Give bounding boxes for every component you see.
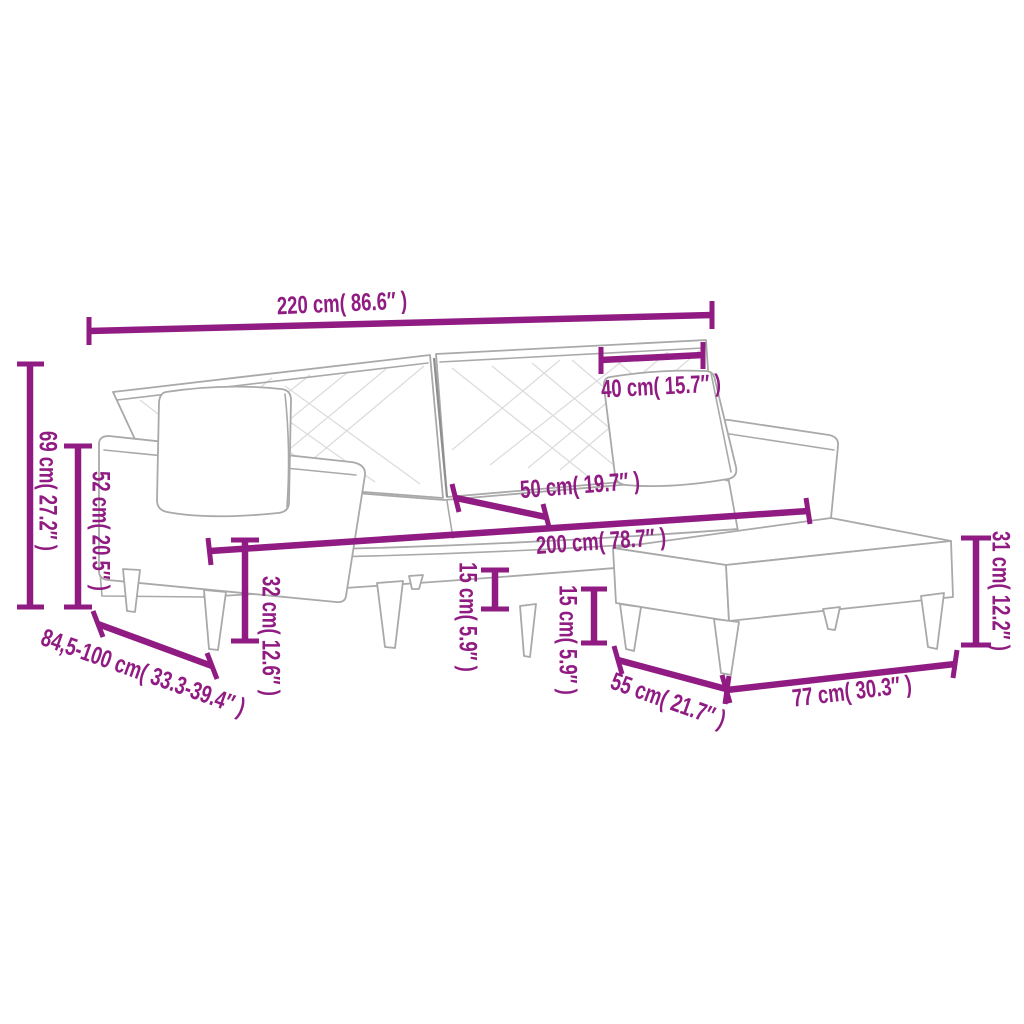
- dim-label-footstool-height: 31 cm( 12.2″ ): [988, 531, 1013, 651]
- left-pillow: [157, 387, 291, 517]
- dim-label-overall-height: 69 cm( 27.2″ ): [35, 431, 60, 551]
- dim-label-seat-height: 32 cm( 12.6″ ): [258, 576, 283, 696]
- diagram-line-art: [0, 0, 1024, 1024]
- sofa-dimension-diagram: 220 cm( 86.6″ ) 40 cm( 15.7″ ) 69 cm( 27…: [0, 0, 1024, 1024]
- dim-footstool-leg-height: [581, 589, 607, 643]
- dim-label-footstool-leg-height: 15 cm( 5.9″ ): [555, 585, 580, 695]
- dim-label-sofa-leg-height: 15 cm( 5.9″ ): [455, 562, 480, 672]
- dim-label-overall-width: 220 cm( 86.6″ ): [276, 289, 407, 320]
- dim-label-armrest-height: 52 cm( 20.5″ ): [88, 471, 113, 591]
- dim-label-back-cushion-width: 40 cm( 15.7″ ): [600, 371, 721, 402]
